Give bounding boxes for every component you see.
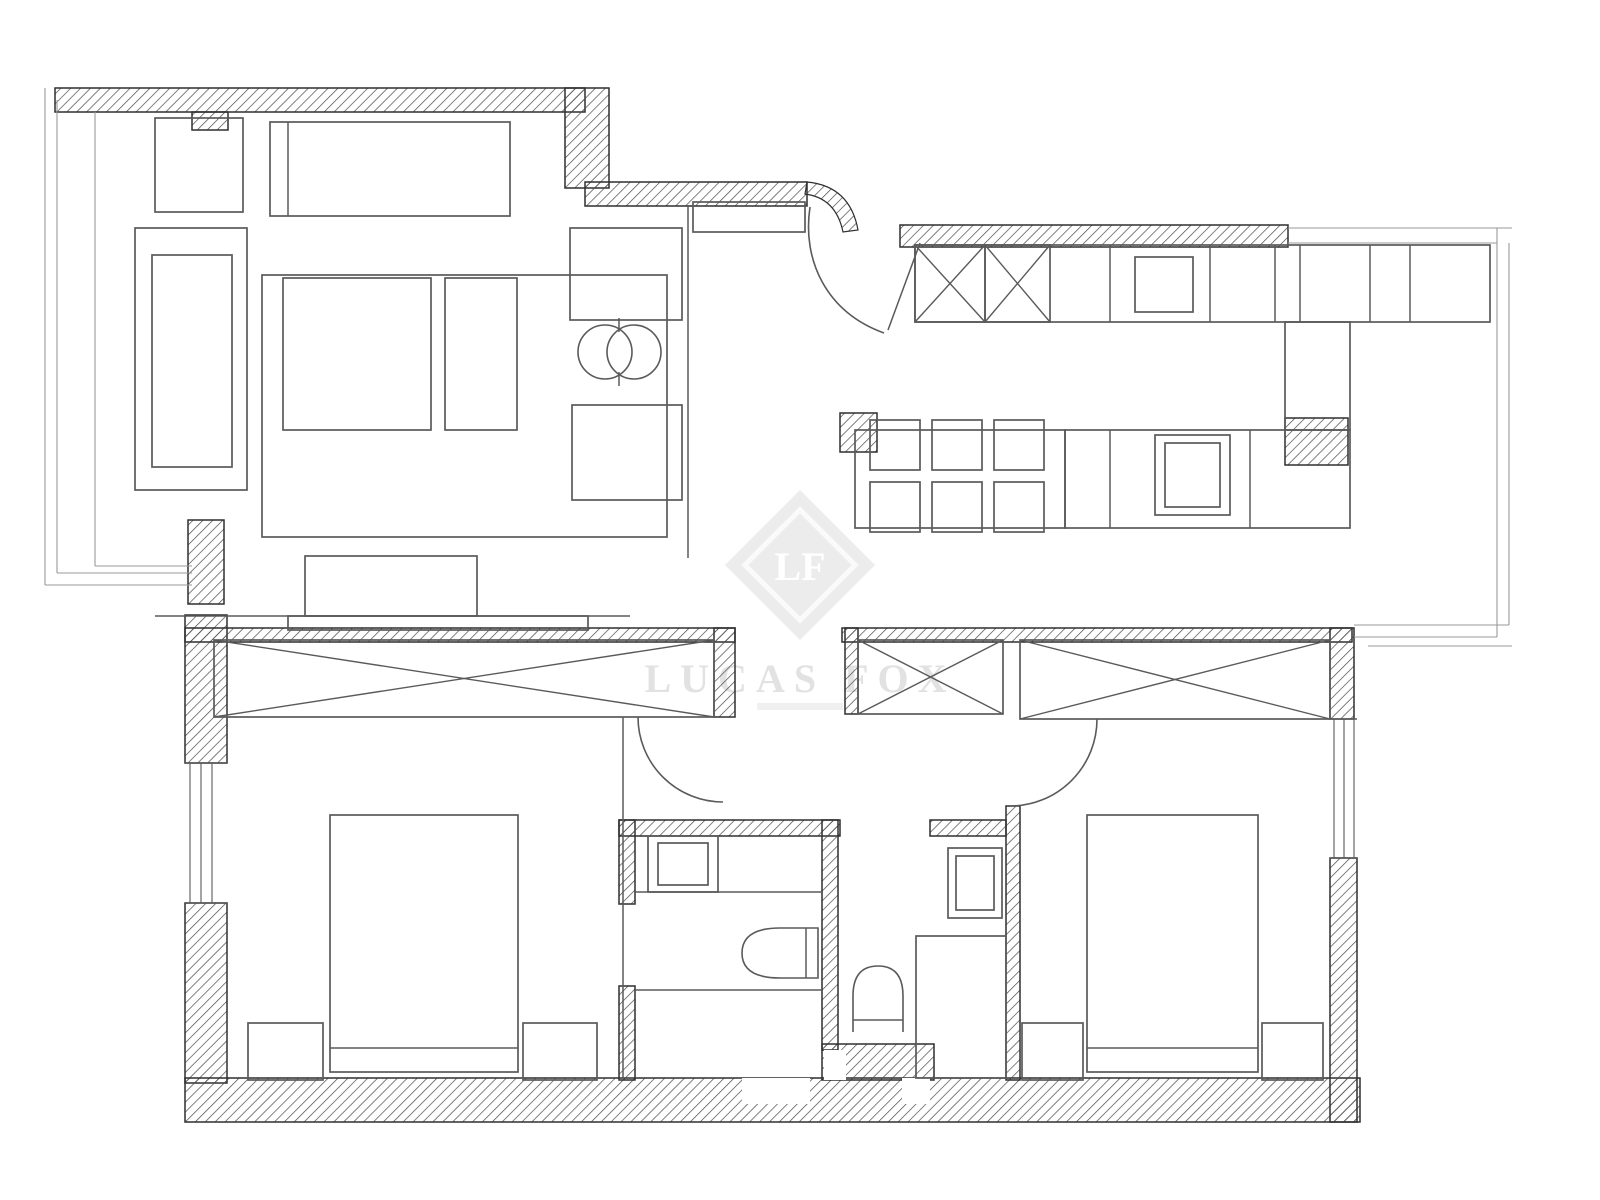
bathroom2-right-wall [1006,806,1020,1080]
bathroom1-left-wall-lower [619,986,635,1080]
dining-chair-4 [870,482,920,532]
side-table [445,278,517,430]
bottom-wall-recess-2 [902,1078,930,1104]
floor-plan-svg: LF LUCAS FOX [0,0,1600,1200]
nightstand-2 [523,1023,597,1080]
dining-chair-5 [932,482,982,532]
armchair-1 [570,228,682,320]
bedroom2-right-wall-lower [1330,858,1357,1122]
living-bedroom-junction-pillar [188,520,224,604]
watermark: LF LUCAS FOX [644,490,955,710]
floor-plan-page: LF LUCAS FOX [0,0,1600,1200]
kitchen-appliance-top [1135,257,1193,312]
bathroom2-sink-basin [956,856,994,910]
nightstand-3 [1022,1023,1083,1080]
dining-table [855,430,1065,528]
kitchen-appliance-lower-inner [1165,443,1220,507]
tv-unit [305,556,477,616]
kitchen-top-counter [915,245,1490,322]
entry-wall-hook [805,182,858,232]
bathroom2-top-wall [930,820,1006,836]
watermark-brand-text: LUCAS FOX [644,656,955,701]
watermark-monogram: LF [774,544,825,589]
armchair-2 [572,405,682,500]
dining-chair-3 [994,420,1044,470]
toilet-2 [853,966,903,1032]
kitchen-pillar [1285,418,1348,465]
living-cabinet [155,118,243,212]
bedroom2-door-arc [1010,719,1097,806]
bathroom1-top-wall [619,820,840,836]
kitchen-top-wall [900,225,1288,247]
nightstand-4 [1262,1023,1323,1080]
bathroom-wall-recess [824,1050,846,1080]
bathroom1-sink-basin [658,843,708,885]
bedroom1-left-wall-lower [185,903,227,1083]
living-wall-step [565,88,609,188]
living-top-wall [55,88,585,112]
watermark-subtitle-bar [757,703,843,710]
decor-circle-1 [578,325,632,379]
bottom-wall-recess-1 [742,1078,810,1104]
bedroom1-wardrobe-cap [714,628,735,717]
bathroom1-right-wall [822,820,838,1050]
sofa-cushion [152,255,232,467]
dining-chair-6 [994,482,1044,532]
living-rug [262,275,667,537]
dining-chair-2 [932,420,982,470]
kitchen-appliance-lower [1155,435,1230,515]
bed-1 [330,815,518,1072]
decor-circle-2 [607,325,661,379]
coffee-table [283,278,431,430]
living-wall-stub [192,112,228,130]
bed-2 [1087,815,1258,1072]
kitchen-column [1285,322,1350,430]
dining-corner-pillar [840,413,877,452]
living-sideboard [270,122,510,216]
bedroom2-wardrobe-cap [1330,628,1354,719]
bedroom1-door-arc [638,717,723,802]
nightstand-1 [248,1023,323,1080]
